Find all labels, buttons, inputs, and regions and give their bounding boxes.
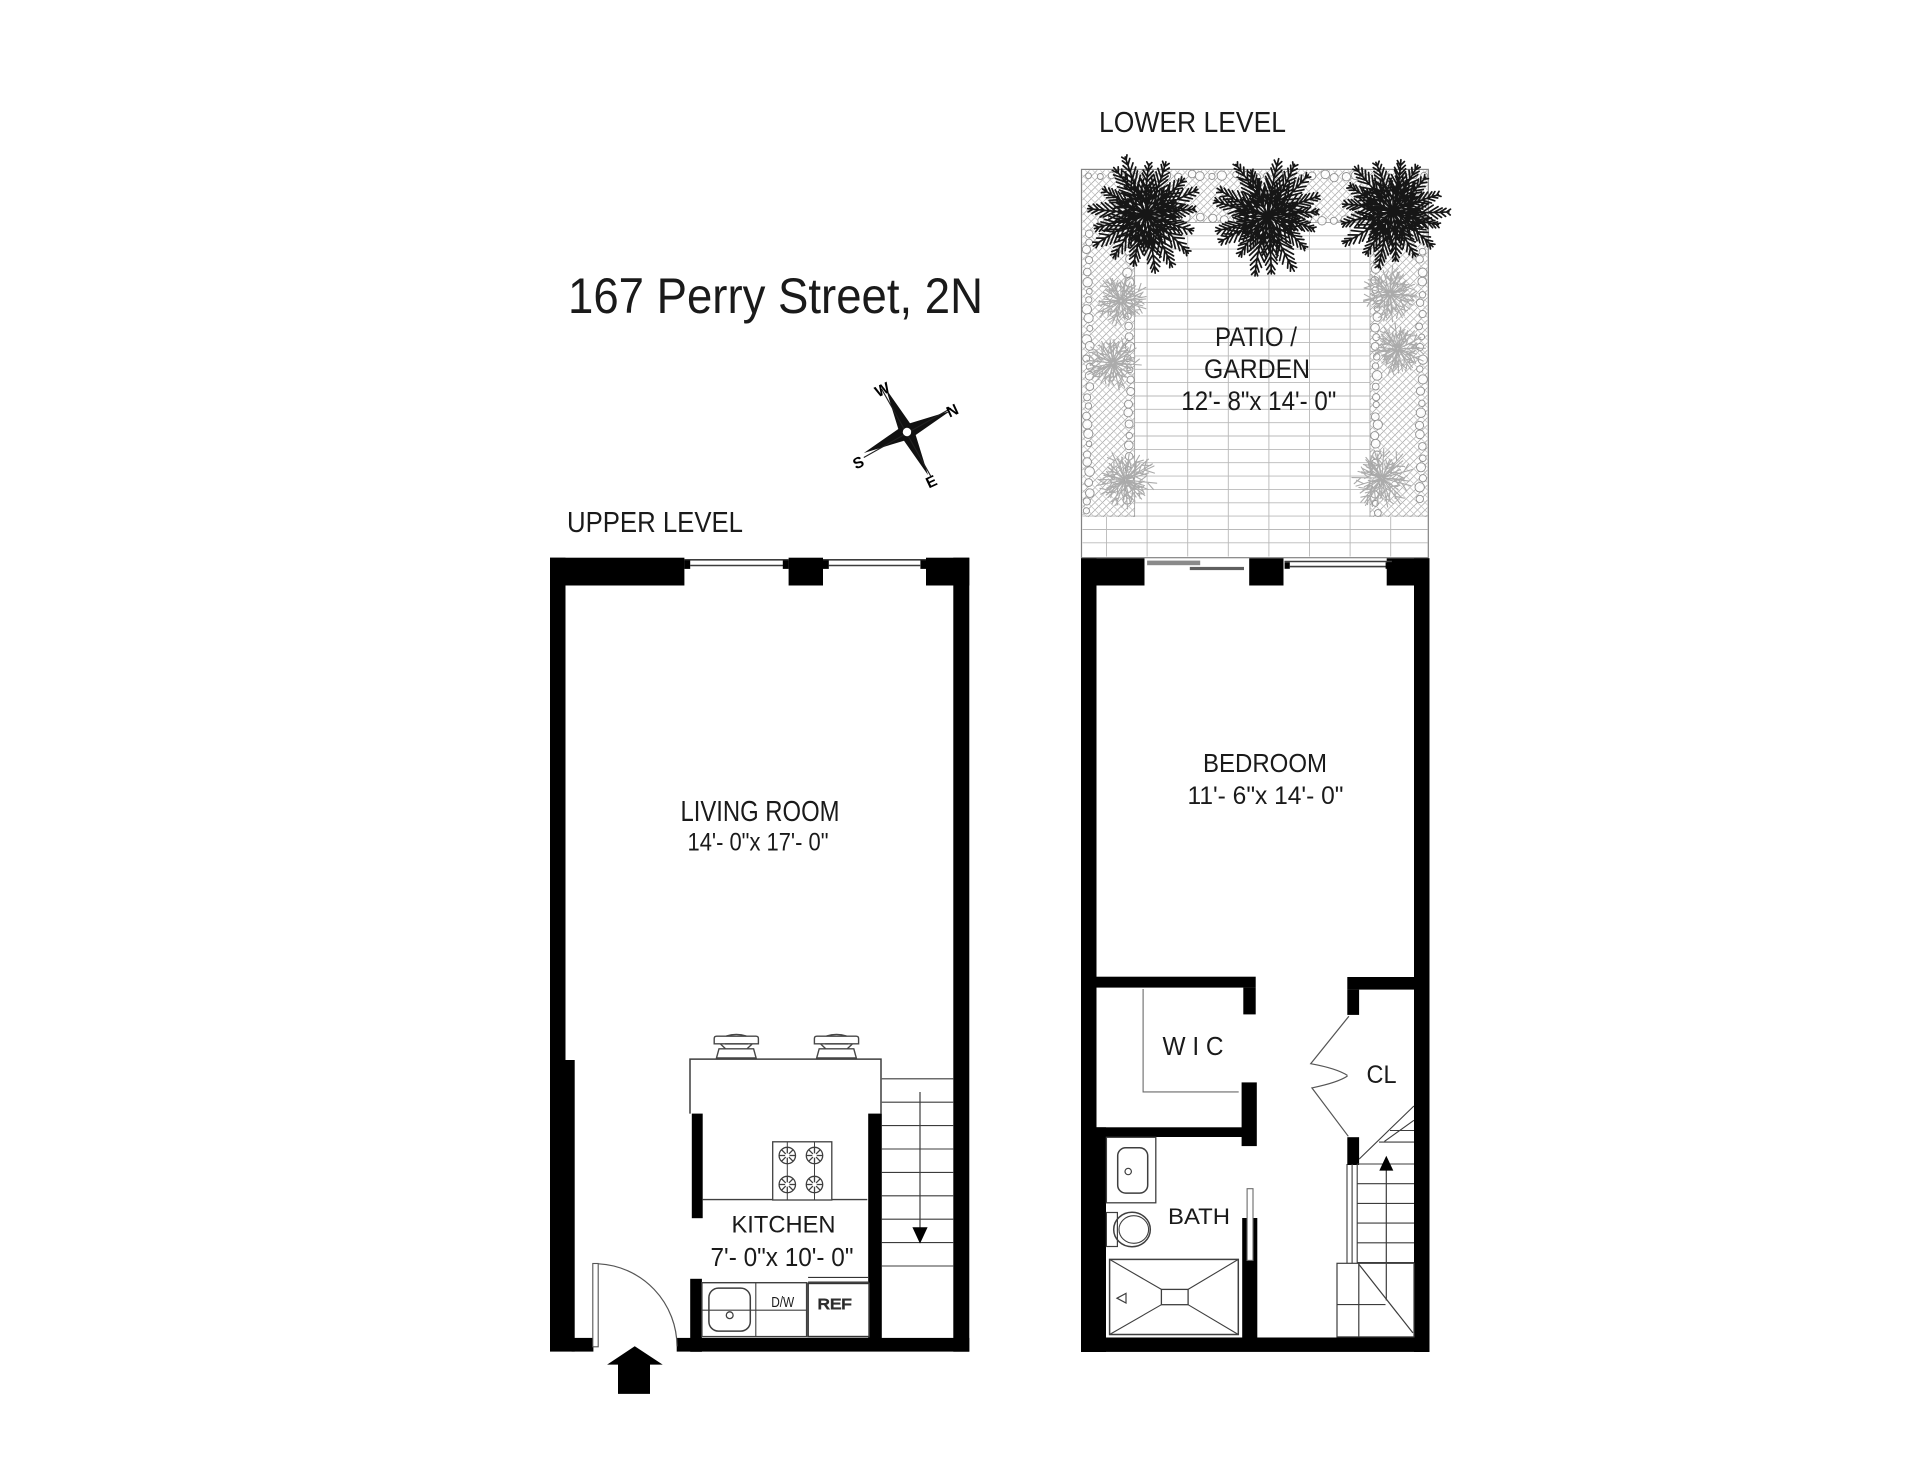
svg-text:UPPER LEVEL: UPPER LEVEL <box>567 507 743 539</box>
svg-text:BATH: BATH <box>1168 1204 1230 1229</box>
svg-text:PATIO /: PATIO / <box>1215 322 1297 352</box>
svg-text:14'- 0"x 17'- 0": 14'- 0"x 17'- 0" <box>688 829 829 857</box>
svg-text:12'- 8"x 14'- 0": 12'- 8"x 14'- 0" <box>1181 386 1336 416</box>
svg-text:LOWER LEVEL: LOWER LEVEL <box>1099 107 1286 139</box>
svg-text:W I C: W I C <box>1163 1033 1224 1061</box>
svg-text:GARDEN: GARDEN <box>1204 354 1310 384</box>
svg-text:BEDROOM: BEDROOM <box>1203 750 1327 778</box>
svg-text:167 Perry Street, 2N: 167 Perry Street, 2N <box>568 268 983 324</box>
svg-text:7'- 0"x 10'- 0": 7'- 0"x 10'- 0" <box>711 1244 854 1272</box>
svg-text:LIVING ROOM: LIVING ROOM <box>681 796 840 828</box>
svg-text:REF: REF <box>818 1296 852 1313</box>
svg-text:D/W: D/W <box>771 1294 795 1311</box>
svg-text:11'- 6"x 14'- 0": 11'- 6"x 14'- 0" <box>1188 783 1344 810</box>
svg-text:CL: CL <box>1367 1061 1397 1089</box>
svg-text:KITCHEN: KITCHEN <box>732 1212 836 1239</box>
